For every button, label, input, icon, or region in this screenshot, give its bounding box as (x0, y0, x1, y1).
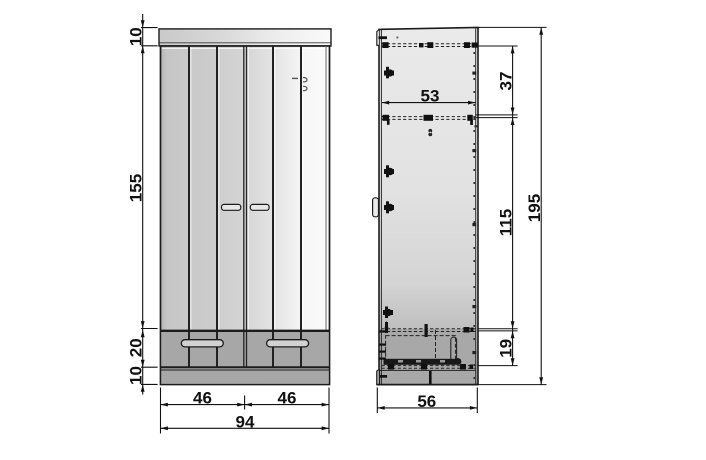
svg-text:10: 10 (126, 366, 145, 385)
svg-text:115: 115 (496, 209, 515, 236)
svg-text:195: 195 (525, 194, 544, 222)
svg-text:46: 46 (278, 388, 297, 407)
svg-text:10: 10 (126, 27, 145, 46)
svg-text:94: 94 (236, 413, 255, 432)
svg-text:155: 155 (126, 174, 145, 202)
svg-text:53: 53 (421, 87, 440, 106)
svg-text:19: 19 (496, 339, 515, 358)
svg-text:20: 20 (126, 338, 145, 357)
svg-text:37: 37 (496, 72, 515, 91)
svg-text:46: 46 (193, 388, 212, 407)
svg-text:56: 56 (417, 392, 436, 411)
